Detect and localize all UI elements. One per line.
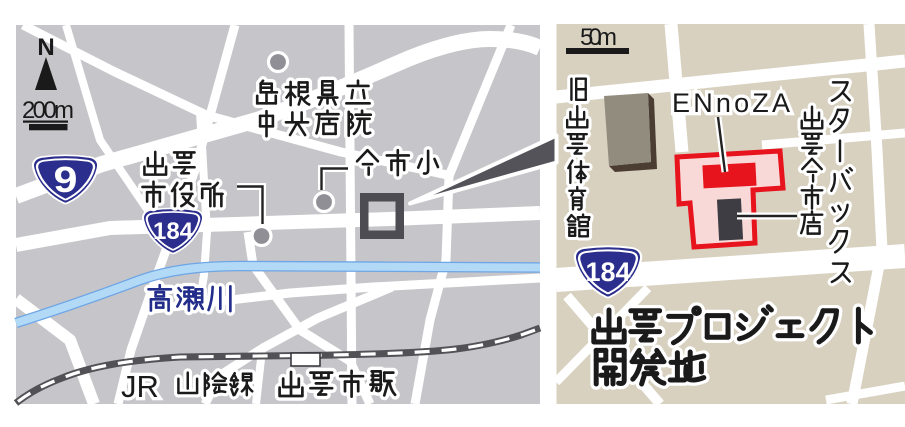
svg-text:JR: JR (121, 369, 159, 404)
svg-text:184: 184 (153, 218, 194, 245)
svg-text:9: 9 (54, 159, 78, 200)
svg-text:184: 184 (585, 257, 630, 287)
svg-text:N: N (37, 34, 54, 61)
svg-text:200m: 200m (22, 97, 74, 124)
svg-text:50m: 50m (580, 24, 617, 51)
